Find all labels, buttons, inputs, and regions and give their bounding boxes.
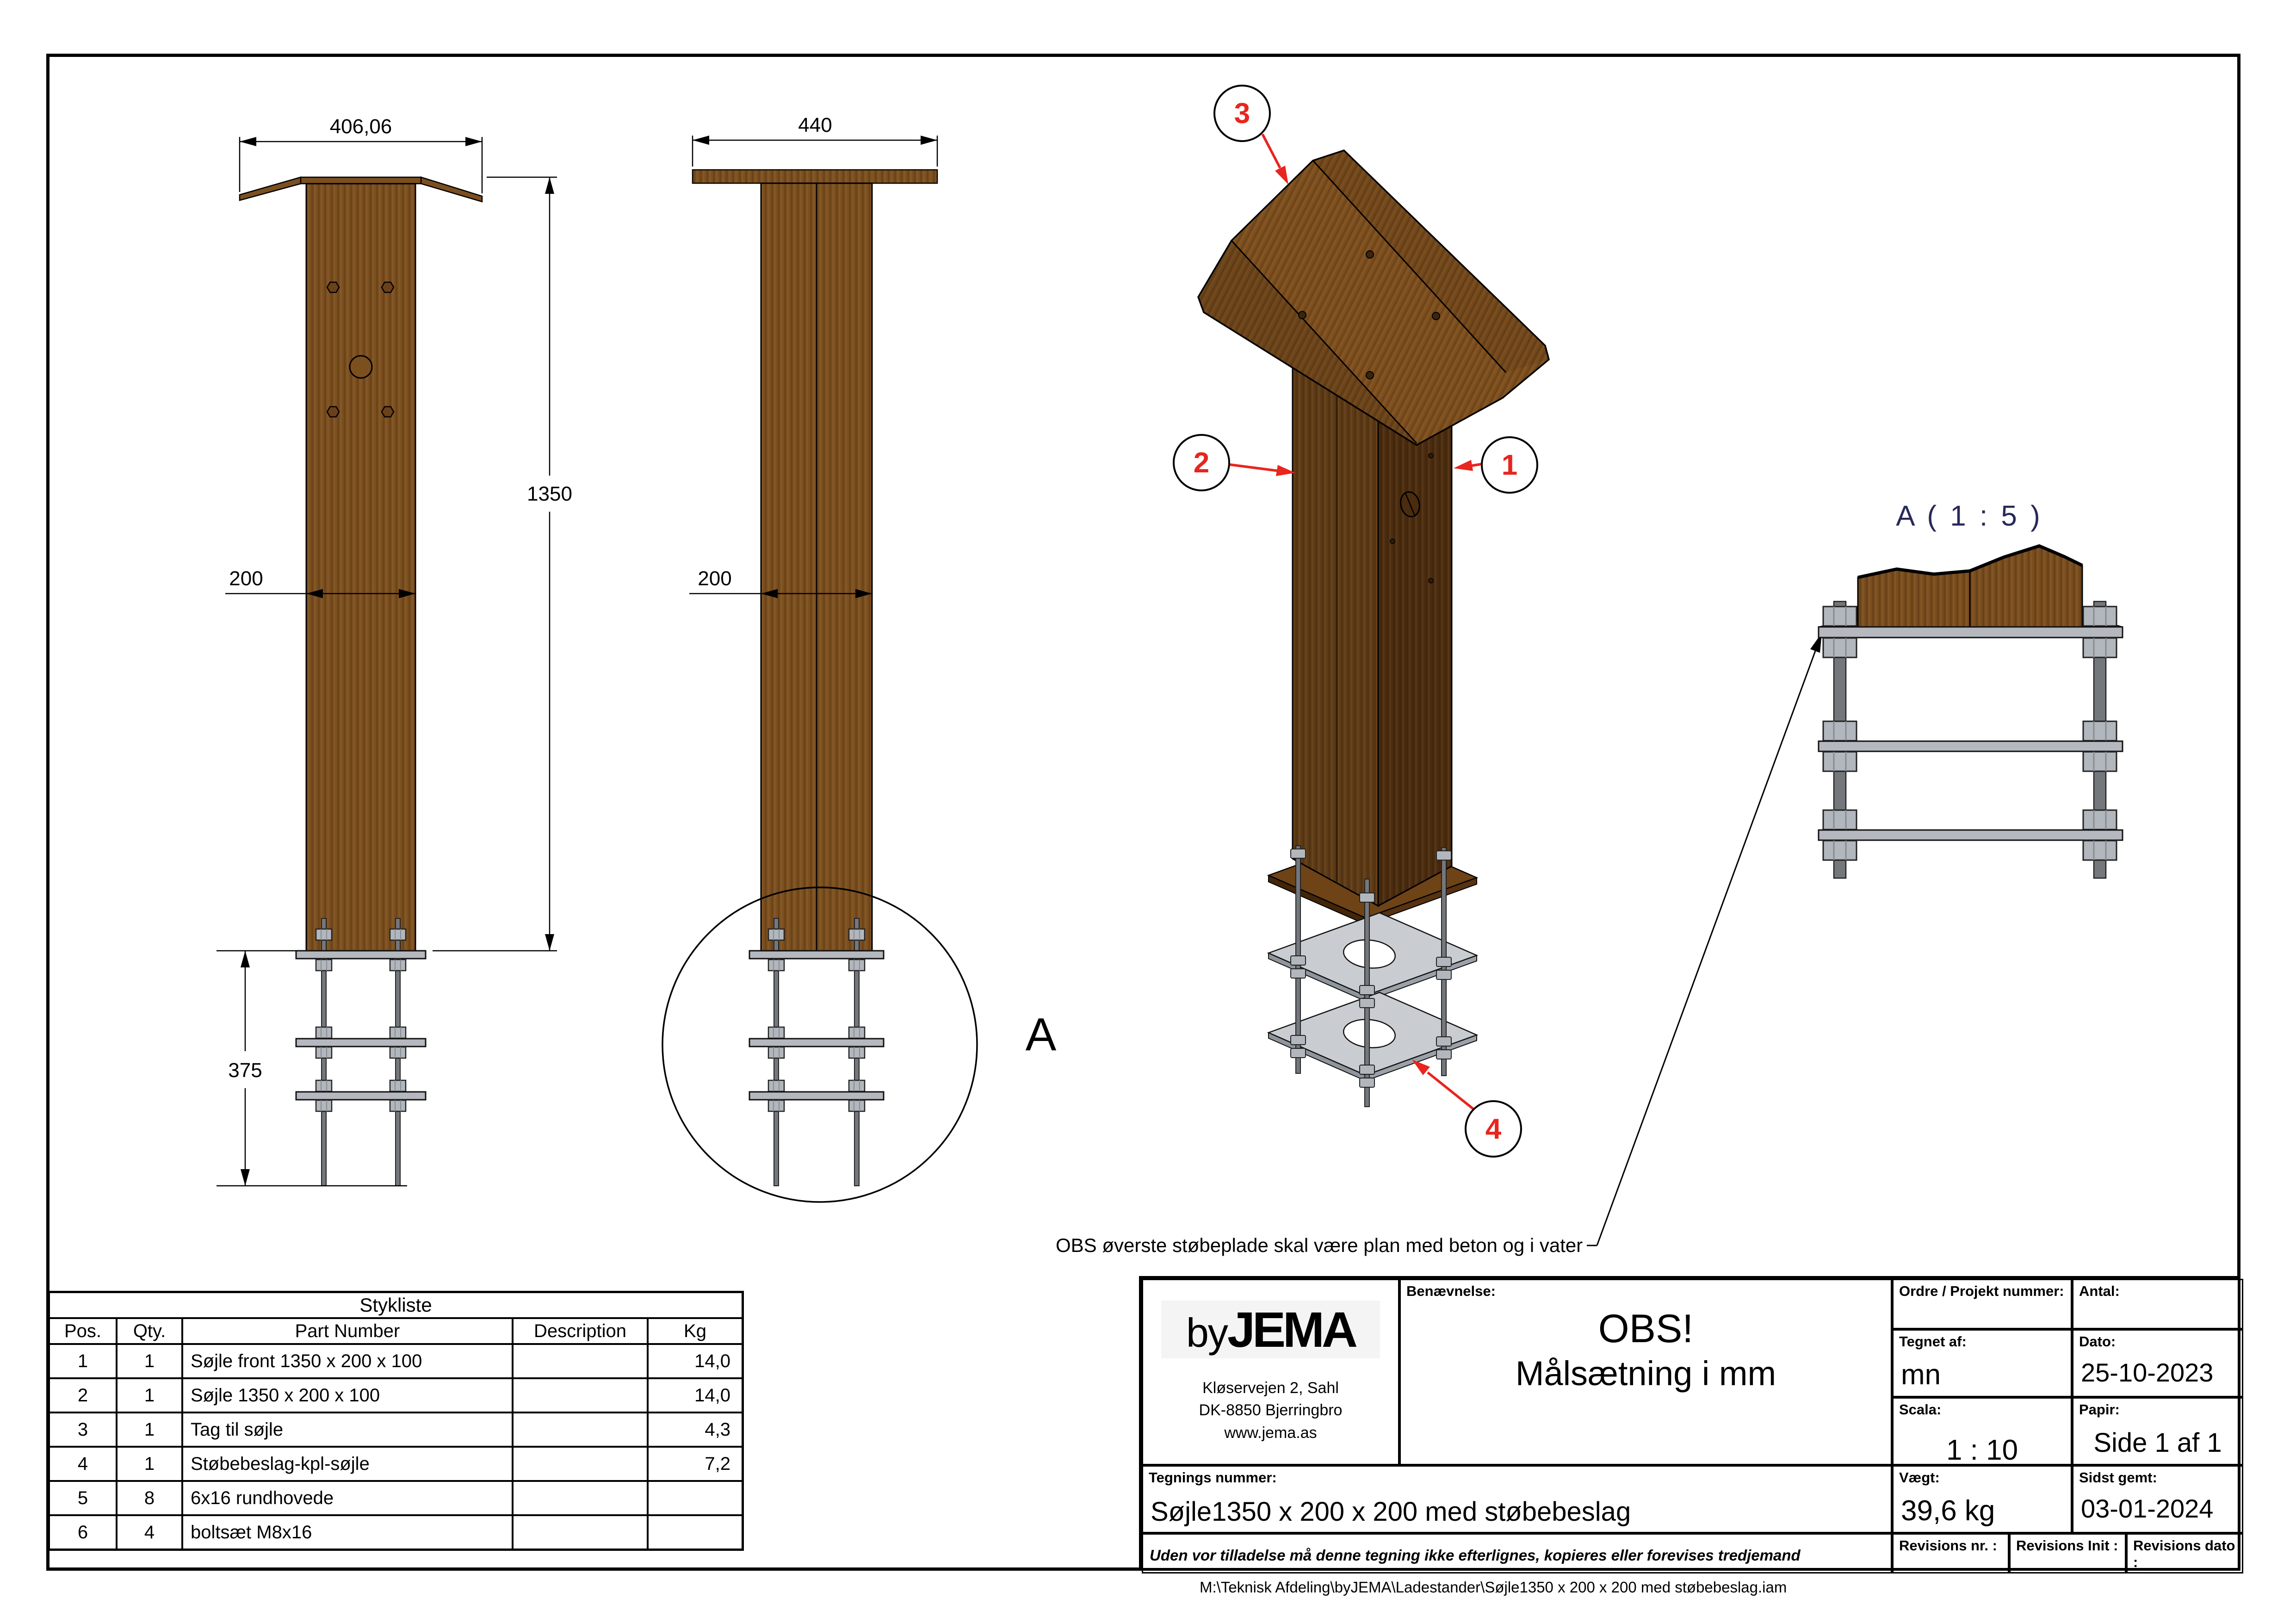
- drawing-sheet: 406,06 200 1350: [0, 0, 2296, 1623]
- table-row: 5 8 6x16 rundhovede: [50, 1482, 742, 1516]
- dato-value: 25-10-2023: [2073, 1357, 2242, 1388]
- tegnings-label: Tegnings nummer:: [1143, 1467, 1891, 1486]
- iso-view: 3 2 1 4 OBS øverste støb: [1056, 86, 1822, 1256]
- cell-pos: 5: [50, 1482, 116, 1514]
- cell-pos: 2: [50, 1379, 116, 1412]
- address-line-1: Kløservejen 2, Sahl: [1143, 1377, 1398, 1399]
- dim-200-front-text: 200: [229, 567, 263, 590]
- cell-desc: [512, 1516, 647, 1549]
- dim-440-text: 440: [798, 114, 832, 136]
- obs-note-text: OBS øverste støbeplade skal være plan me…: [1056, 1234, 1583, 1256]
- col-header-pos: Pos.: [50, 1319, 116, 1343]
- antal-cell: Antal:: [2072, 1279, 2243, 1329]
- dim-200-side-text: 200: [698, 567, 731, 590]
- dim-440: 440: [693, 114, 937, 167]
- cable-hole: [350, 356, 372, 378]
- front-view: 406,06 200 1350: [217, 115, 572, 1186]
- cell-part: 6x16 rundhovede: [181, 1482, 512, 1514]
- side-anchor-assembly: [749, 918, 884, 1186]
- cell-part: Søjle 1350 x 200 x 100: [181, 1379, 512, 1412]
- dim-1350-text: 1350: [527, 483, 572, 505]
- table-row: 6 4 boltsæt M8x16: [50, 1516, 742, 1549]
- cell-desc: [512, 1379, 647, 1412]
- address-line-3: www.jema.as: [1143, 1422, 1398, 1444]
- cell-desc: [512, 1345, 647, 1377]
- table-row: 3 1 Tag til søjle 4,3: [50, 1413, 742, 1448]
- cell-qty: 4: [116, 1516, 181, 1549]
- rev-dato-label: Revisions dato :: [2128, 1535, 2242, 1571]
- cell-pos: 4: [50, 1448, 116, 1480]
- cell-pos: 3: [50, 1413, 116, 1446]
- logo-cell: byJEMA Kløservejen 2, Sahl DK-8850 Bjerr…: [1142, 1279, 1399, 1465]
- sidst-gemt-cell: Sidst gemt: 03-01-2024: [2072, 1465, 2243, 1533]
- tegnet-cell: Tegnet af: mn: [1892, 1329, 2072, 1397]
- company-address: Kløservejen 2, Sahl DK-8850 Bjerringbro …: [1143, 1377, 1398, 1444]
- antal-label: Antal:: [2073, 1280, 2242, 1300]
- table-row: 4 1 Støbebeslag-kpl-søjle 7,2: [50, 1448, 742, 1482]
- ordre-cell: Ordre / Projekt nummer:: [1892, 1279, 2072, 1329]
- cell-qty: 1: [116, 1448, 181, 1480]
- parts-list-title: Stykliste: [50, 1293, 742, 1319]
- cell-part: Søjle front 1350 x 200 x 100: [181, 1345, 512, 1377]
- tegnet-value: mn: [1894, 1358, 2071, 1391]
- front-anchor-assembly: [296, 918, 426, 1186]
- dato-label: Dato:: [2073, 1331, 2242, 1350]
- parts-list: Stykliste Pos. Qty. Part Number Descript…: [48, 1291, 744, 1551]
- detail-view-a: A ( 1 : 5 ): [1819, 500, 2123, 878]
- benaevnelse-cell: Benævnelse: OBS! Målsætning i mm: [1399, 1279, 1892, 1465]
- cell-desc: [512, 1413, 647, 1446]
- cell-kg: [647, 1516, 742, 1549]
- sidst-gemt-value: 03-01-2024: [2073, 1493, 2242, 1524]
- cell-qty: 1: [116, 1345, 181, 1377]
- balloon-1: 1: [1454, 437, 1537, 493]
- cell-pos: 6: [50, 1516, 116, 1549]
- scala-cell: Scala: 1 : 10: [1892, 1397, 2072, 1465]
- cell-part: Tag til søjle: [181, 1413, 512, 1446]
- balloon-3-number: 3: [1234, 98, 1250, 130]
- benaevnelse-line2: Målsætning i mm: [1401, 1354, 1891, 1393]
- cell-kg: 4,3: [647, 1413, 742, 1446]
- cell-desc: [512, 1482, 647, 1514]
- cell-kg: [647, 1482, 742, 1514]
- benaevnelse-label: Benævnelse:: [1401, 1280, 1891, 1300]
- cell-kg: 14,0: [647, 1379, 742, 1412]
- title-block: byJEMA Kløservejen 2, Sahl DK-8850 Bjerr…: [1139, 1276, 2240, 1571]
- disclaimer-text: Uden vor tilladelse må denne tegning ikk…: [1143, 1535, 1891, 1564]
- cell-kg: 14,0: [647, 1345, 742, 1377]
- rev-init-cell: Revisions Init :: [2009, 1533, 2126, 1573]
- vaegt-value: 39,6 kg: [1894, 1494, 2071, 1527]
- logo-jema-text: JEMA: [1227, 1301, 1355, 1357]
- scala-label: Scala:: [1894, 1399, 2071, 1418]
- rev-nr-label: Revisions nr. :: [1894, 1535, 2008, 1554]
- scala-value: 1 : 10: [1894, 1434, 2071, 1465]
- col-header-qty: Qty.: [116, 1319, 181, 1343]
- vaegt-label: Vægt:: [1894, 1467, 2071, 1486]
- balloon-4: 4: [1412, 1059, 1521, 1157]
- rev-init-label: Revisions Init :: [2011, 1535, 2125, 1554]
- tegnet-label: Tegnet af:: [1894, 1331, 2071, 1350]
- sidst-gemt-label: Sidst gemt:: [2073, 1467, 2242, 1486]
- parts-list-header: Pos. Qty. Part Number Description Kg: [50, 1319, 742, 1345]
- col-header-desc: Description: [512, 1319, 647, 1343]
- balloon-1-number: 1: [1502, 449, 1517, 481]
- cell-pos: 1: [50, 1345, 116, 1377]
- cell-part: boltsæt M8x16: [181, 1516, 512, 1549]
- detail-title: A ( 1 : 5 ): [1896, 500, 2043, 532]
- cell-part: Støbebeslag-kpl-søjle: [181, 1448, 512, 1480]
- rev-nr-cell: Revisions nr. :: [1892, 1533, 2009, 1573]
- logo-by-text: by: [1186, 1310, 1227, 1356]
- balloon-2: 2: [1174, 435, 1295, 490]
- disclaimer-cell: Uden vor tilladelse må denne tegning ikk…: [1142, 1533, 1892, 1573]
- papir-value: Side 1 af 1: [2073, 1427, 2242, 1458]
- vaegt-cell: Vægt: 39,6 kg: [1892, 1465, 2072, 1533]
- papir-cell: Papir: Side 1 af 1: [2072, 1397, 2243, 1465]
- dim-375-text: 375: [228, 1059, 262, 1082]
- dim-375: 375: [217, 951, 407, 1186]
- cell-qty: 1: [116, 1379, 181, 1412]
- detail-circle-label: A: [1026, 1009, 1057, 1060]
- benaevnelse-line1: OBS!: [1401, 1306, 1891, 1352]
- side-view: 440 200 A: [662, 114, 1057, 1202]
- tegnings-value: Søjle1350 x 200 x 200 med støbebeslag: [1143, 1496, 1891, 1527]
- balloon-2-number: 2: [1194, 447, 1209, 479]
- dato-cell: Dato: 25-10-2023: [2072, 1329, 2243, 1397]
- balloon-4-number: 4: [1485, 1113, 1502, 1145]
- file-path: M:\Teknisk Afdeling\byJEMA\Ladestander\S…: [1200, 1579, 1787, 1596]
- balloon-3: 3: [1214, 86, 1288, 185]
- dim-406-text: 406,06: [330, 115, 392, 138]
- cell-qty: 8: [116, 1482, 181, 1514]
- papir-label: Papir:: [2073, 1399, 2242, 1418]
- cell-qty: 1: [116, 1413, 181, 1446]
- iso-roof: [1198, 150, 1549, 445]
- jema-logo: byJEMA: [1161, 1301, 1380, 1358]
- dim-1350: 1350: [433, 177, 572, 951]
- tegnings-cell: Tegnings nummer: Søjle1350 x 200 x 200 m…: [1142, 1465, 1892, 1533]
- table-row: 2 1 Søjle 1350 x 200 x 100 14,0: [50, 1379, 742, 1413]
- cell-desc: [512, 1448, 647, 1480]
- cell-kg: 7,2: [647, 1448, 742, 1480]
- table-row: 1 1 Søjle front 1350 x 200 x 100 14,0: [50, 1345, 742, 1379]
- ordre-label: Ordre / Projekt nummer:: [1894, 1280, 2071, 1300]
- col-header-kg: Kg: [647, 1319, 742, 1343]
- address-line-2: DK-8850 Bjerringbro: [1143, 1399, 1398, 1421]
- rev-dato-cell: Revisions dato :: [2126, 1533, 2243, 1573]
- col-header-part: Part Number: [181, 1319, 512, 1343]
